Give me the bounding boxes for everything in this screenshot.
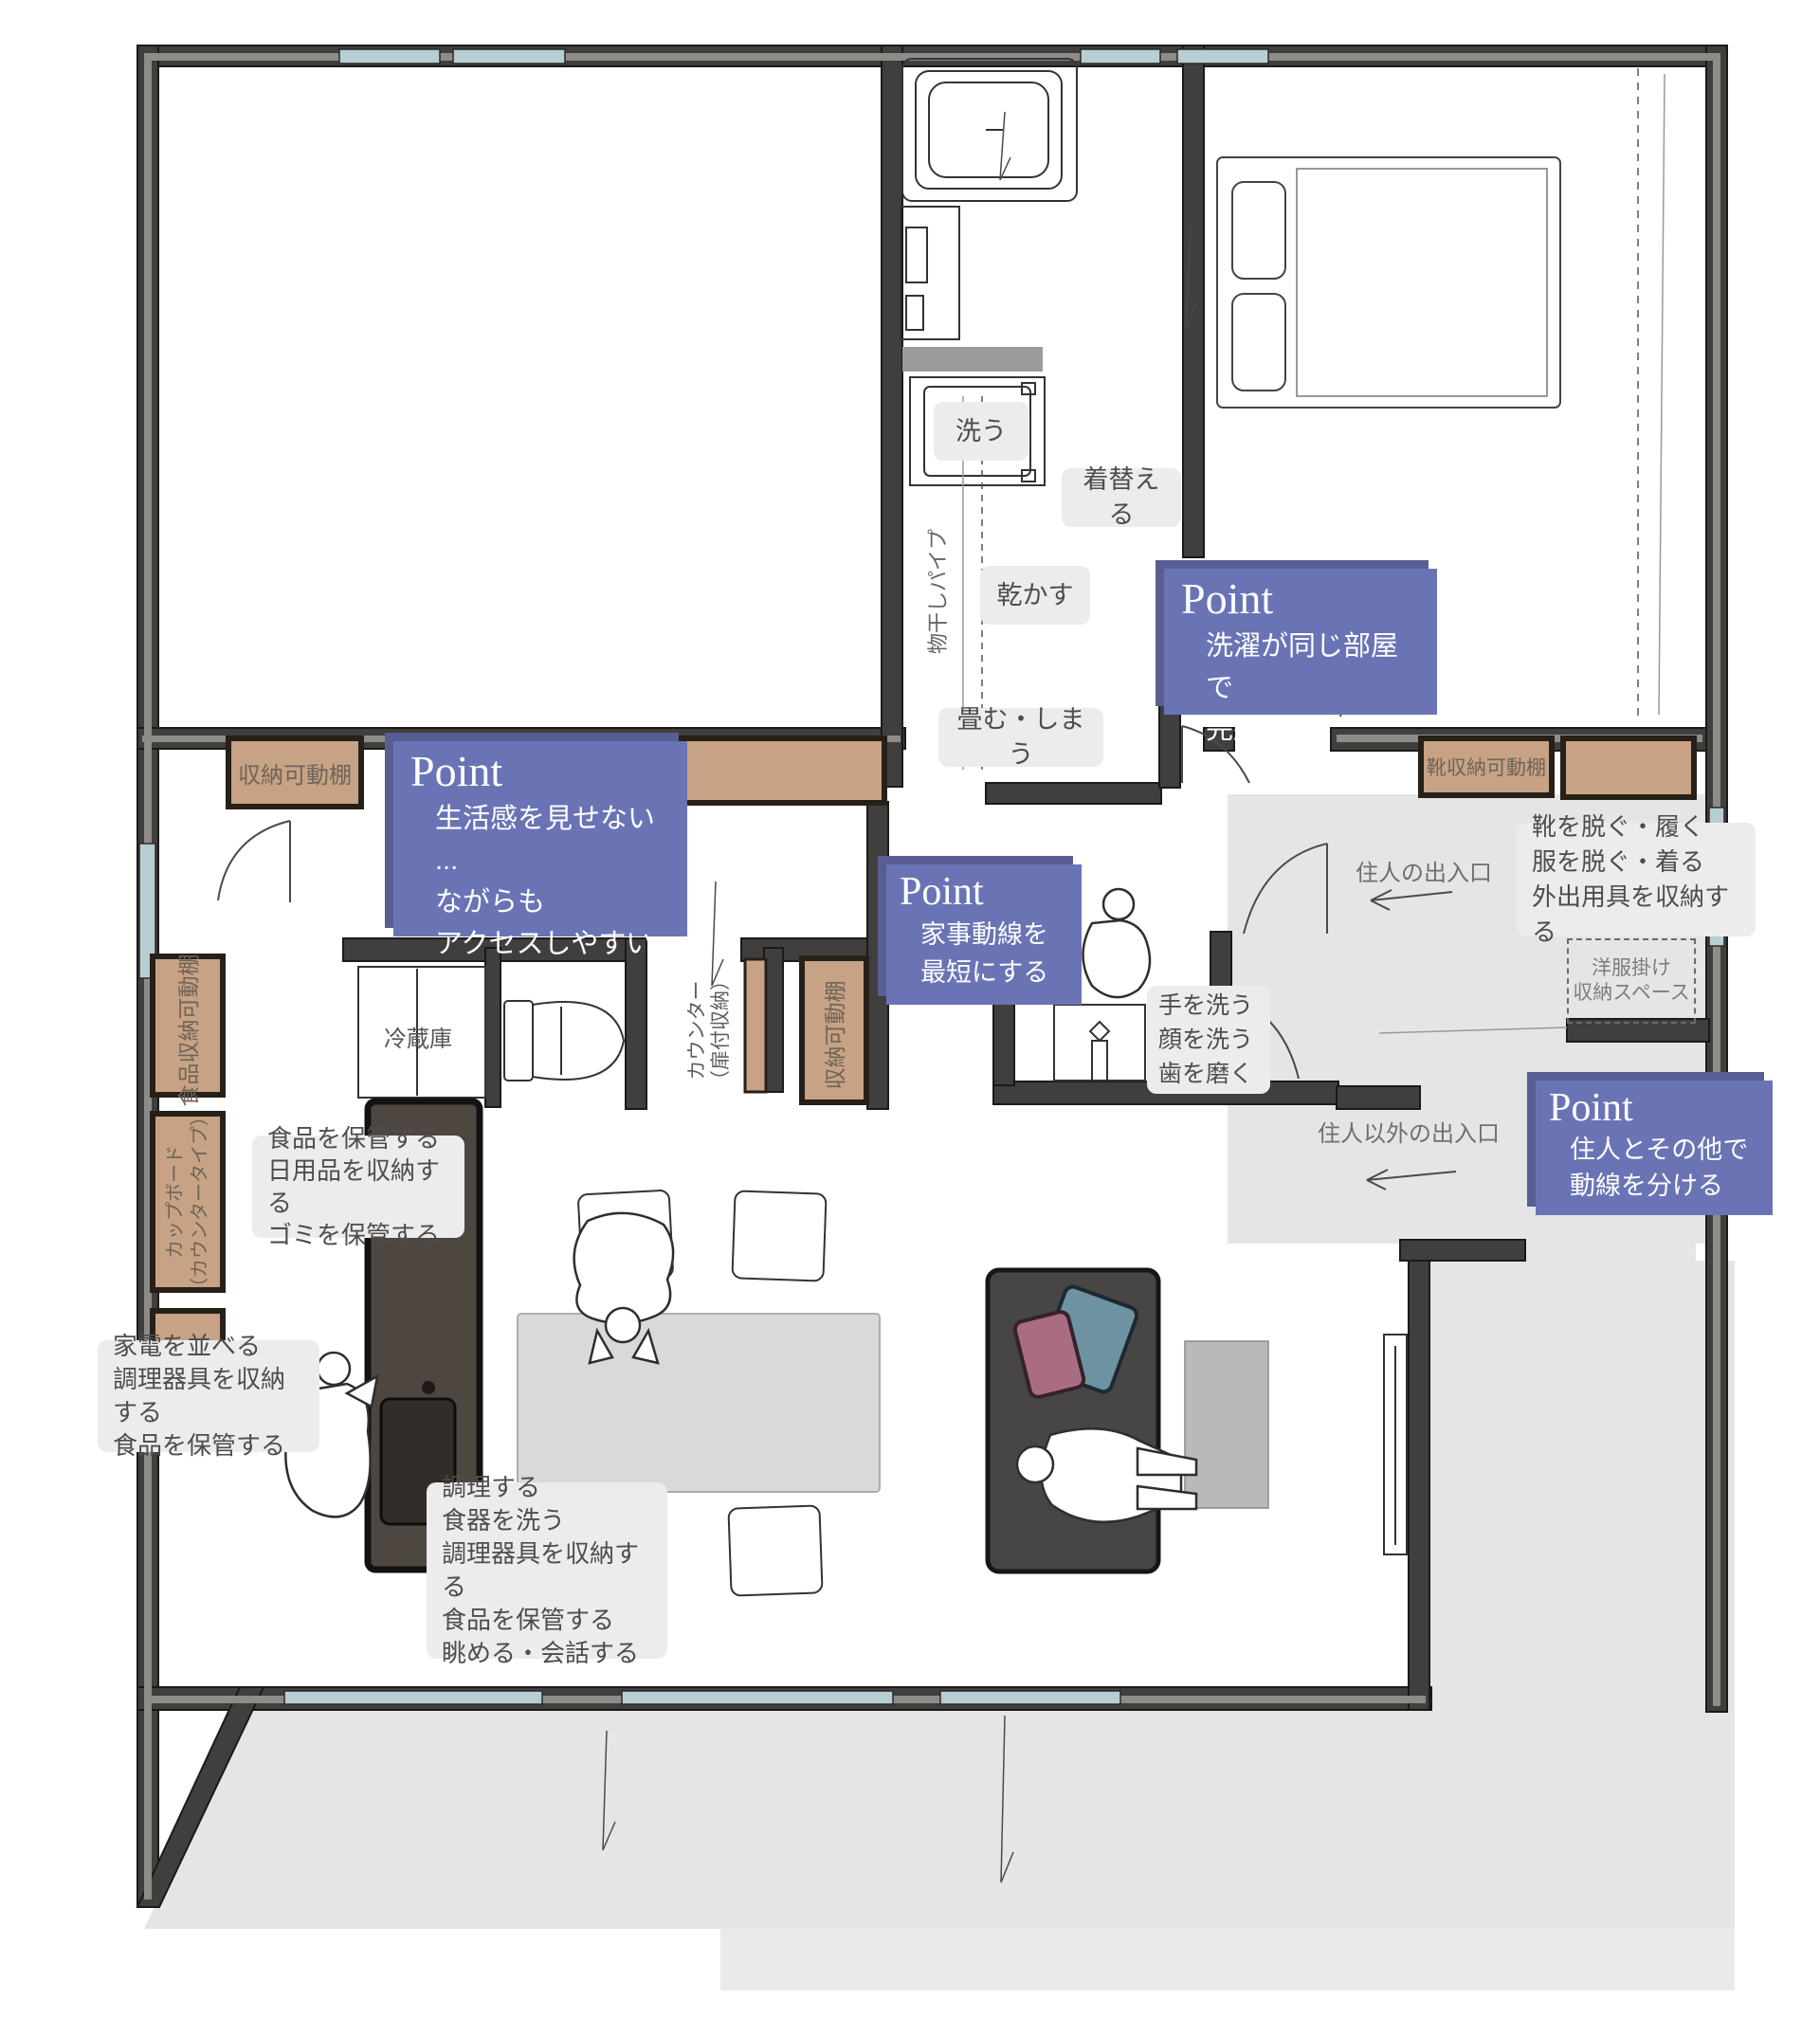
entry-action-1: 靴を脱ぐ・履く [1532, 809, 1740, 845]
label-entry-actions: 靴を脱ぐ・履く 服を脱ぐ・着る 外出用具を収納する [1517, 823, 1756, 936]
label-kitchen-actions: 調理する 食器を洗う 調理器具を収納する 食品を保管する 眺める・会話する [427, 1482, 667, 1659]
label-fold-text: 畳む・しまう [954, 702, 1088, 772]
point-line: 動線を分ける [1570, 1168, 1759, 1204]
wardrobe-label-line1: 洋服掛け [1592, 956, 1671, 981]
point-line: 完結する [1206, 709, 1424, 751]
tv-sketch [1384, 1335, 1407, 1554]
toilet-sketch [504, 1001, 624, 1081]
visitor-entry-label: 住人以外の出入口 [1318, 1115, 1500, 1148]
laundry-pipe-label: 物干しパイプ [921, 520, 952, 663]
vanity-sketch [1054, 1005, 1145, 1081]
label-pantry-actions: 食品を保管する 日用品を収納する ゴミを保管する [252, 1136, 464, 1238]
point-line: ながらも [435, 881, 674, 923]
label-wash-text: 洗う [955, 414, 1007, 449]
label-sink-actions: 手を洗う 顔を洗う 歯を磨く [1147, 986, 1270, 1094]
label-change-text: 着替える [1077, 463, 1166, 533]
sink-action-3: 歯を磨く [1158, 1057, 1259, 1091]
cupboard-shelf-label: カップボード （カウンタータイプ） [163, 1093, 212, 1311]
label-dry-text: 乾かす [997, 578, 1074, 613]
serving-shelf-label: 収納可動棚 [817, 969, 849, 1101]
sink-action-1: 手を洗う [1158, 989, 1259, 1023]
kitchen-action-4: 食品を保管する [442, 1604, 652, 1637]
label-wash: 洗う [934, 402, 1028, 461]
point-line: 生活感を見せない ... [435, 798, 674, 881]
cupboard-label-line2: （カウンタータイプ） [188, 1093, 212, 1311]
entry-shelf-right [1560, 736, 1697, 800]
storage-shelf-corridor [673, 736, 887, 806]
bathtub-sketch [901, 59, 1077, 339]
shoe-shelf: 靴収納可動棚 [1418, 736, 1555, 798]
point-box-laundry: Point 洗濯が同じ部屋で 完結する [1164, 569, 1437, 715]
wardrobe-label-line2: 収納スペース [1573, 981, 1689, 1006]
counter-label-line2: （扉付収納） [709, 954, 733, 1106]
sofa [988, 1270, 1158, 1572]
pantry-action-1: 食品を保管する [267, 1122, 449, 1154]
entry-action-3: 外出用具を収納する [1532, 880, 1740, 950]
label-dry: 乾かす [980, 566, 1090, 625]
floor-plan-canvas [0, 0, 1820, 2017]
storage-shelf-top-left: 収納可動棚 [226, 736, 364, 809]
bed-sketch [1217, 157, 1560, 408]
label-change: 着替える [1062, 468, 1181, 527]
person-washing [1083, 889, 1151, 997]
kitchen-action-3: 調理器具を収納する [442, 1537, 652, 1604]
food-shelf-label: 食品収納可動棚 [171, 950, 203, 1111]
point-line: 家事動線を [920, 916, 1068, 954]
point-title: Point [1549, 1084, 1759, 1132]
point-line: 最短にする [920, 954, 1068, 991]
pantry-action-2: 日用品を収納する [267, 1154, 449, 1219]
counter-label: カウンター （扉付収納） [685, 954, 733, 1106]
wardrobe-space: 洋服掛け 収納スペース [1567, 938, 1696, 1024]
point-line: 洗濯が同じ部屋で [1206, 626, 1424, 709]
point-line: 住人とその他で [1570, 1132, 1759, 1168]
label-cupboard-actions: 家電を並べる 調理器具を収納する 食品を保管する [98, 1340, 319, 1452]
counter-label-line1: カウンター [685, 954, 709, 1106]
kitchen-action-1: 調理する [442, 1471, 652, 1504]
pantry-action-3: ゴミを保管する [267, 1219, 449, 1251]
point-box-flow-separation: Point 住人とその他で 動線を分ける [1536, 1081, 1773, 1215]
counter-strip [745, 959, 766, 1092]
fridge-label: 冷蔵庫 [384, 1020, 452, 1053]
point-box-housework: Point 家事動線を 最短にする [886, 864, 1082, 1005]
point-line: アクセスしやすい [435, 923, 674, 965]
cupboard-label-line1: カップボード [163, 1093, 188, 1311]
point-box-storage: Point 生活感を見せない ... ながらも アクセスしやすい [393, 741, 687, 936]
shelf-label: 収納可動棚 [238, 756, 352, 790]
kitchen-action-5: 眺める・会話する [442, 1637, 652, 1670]
point-title: Point [900, 868, 1068, 916]
entry-action-2: 服を脱ぐ・着る [1532, 845, 1740, 880]
rug [1185, 1341, 1268, 1508]
bath-sliding-door [902, 347, 1043, 372]
shoe-shelf-label: 靴収納可動棚 [1427, 753, 1546, 781]
point-title: Point [1181, 572, 1424, 626]
closet-line [1659, 74, 1665, 715]
resident-entry-label: 住人の出入口 [1356, 854, 1492, 887]
cupboard-action-3: 食品を保管する [113, 1429, 304, 1463]
sink-action-2: 顔を洗う [1158, 1023, 1259, 1057]
point-title: Point [410, 745, 674, 798]
cupboard-action-1: 家電を並べる [113, 1330, 304, 1363]
kitchen-action-2: 食器を洗う [442, 1504, 652, 1537]
floor-plan: 収納可動棚 靴収納可動棚 食品収納可動棚 カップボード （カウンタータイプ） カ… [0, 0, 1820, 2017]
label-fold: 畳む・しまう [938, 708, 1103, 767]
cupboard-action-2: 調理器具を収納する [113, 1363, 304, 1429]
